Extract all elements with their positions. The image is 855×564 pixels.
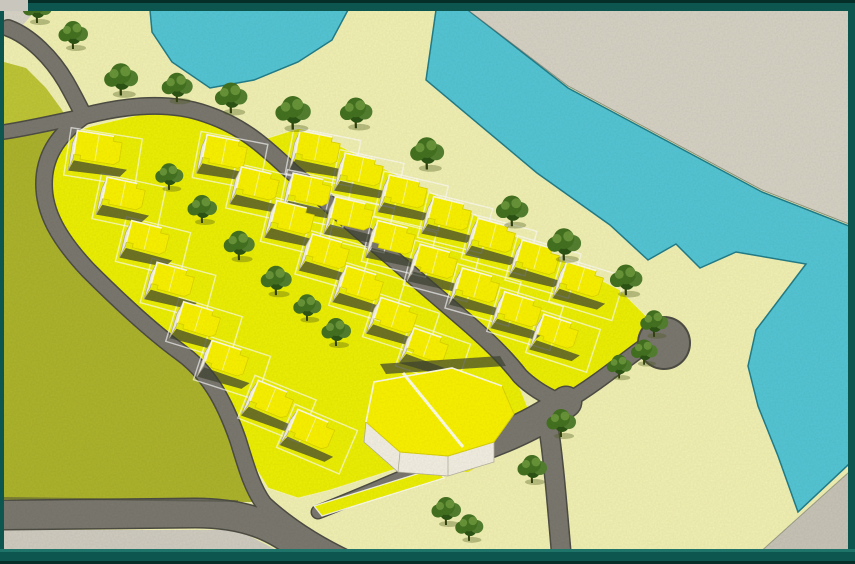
paper-grain	[0, 0, 855, 564]
frame-top	[0, 3, 855, 11]
site-plan-rendering	[0, 0, 855, 564]
frame-bottom	[0, 552, 855, 561]
frame-left	[0, 0, 4, 564]
frame-bottom-light-line	[0, 549, 855, 552]
rendering-canvas	[0, 0, 855, 564]
frame-top-dark-line	[0, 0, 855, 3]
frame-corner-notch	[0, 0, 28, 11]
frame-right	[848, 0, 855, 564]
